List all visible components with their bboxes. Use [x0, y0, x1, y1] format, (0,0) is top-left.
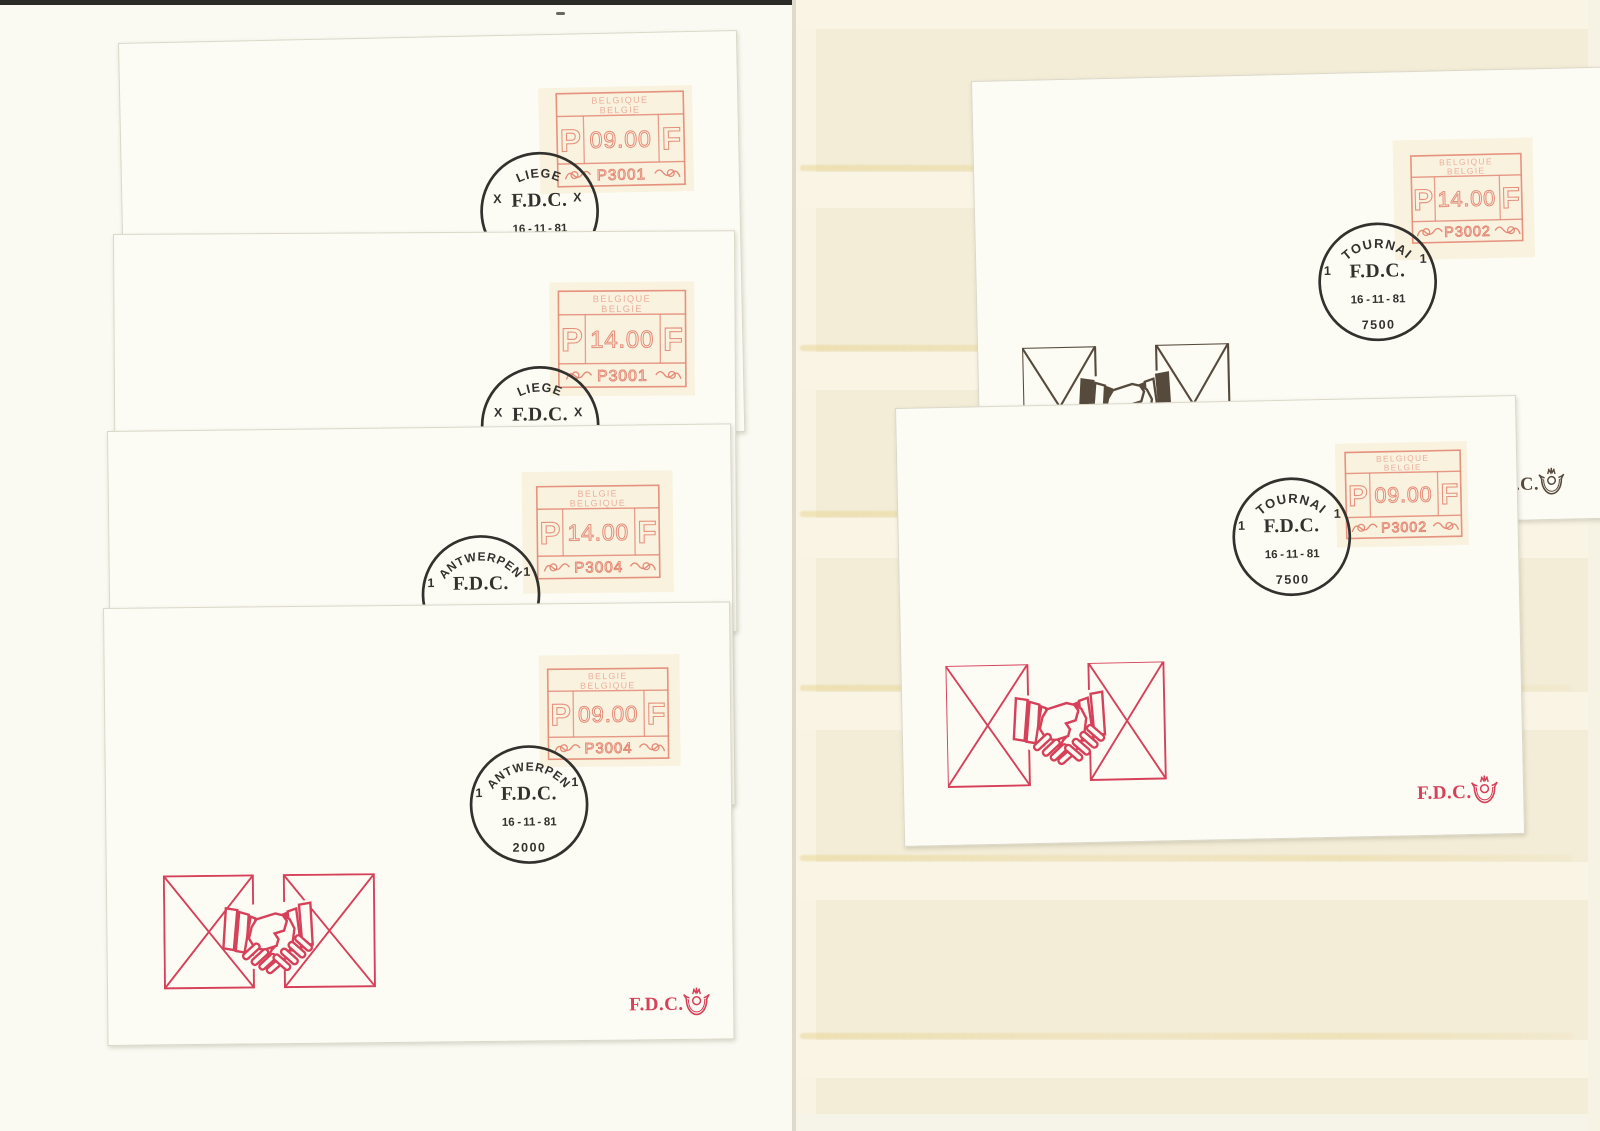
svg-text:F.D.C.: F.D.C. [501, 783, 557, 805]
svg-text:LIEGE: LIEGE [515, 380, 564, 399]
svg-text:1: 1 [1324, 264, 1331, 278]
svg-text:1: 1 [475, 786, 482, 800]
svg-text:1: 1 [427, 576, 434, 590]
svg-text:F: F [663, 320, 683, 357]
svg-text:X: X [573, 190, 582, 204]
svg-text:16-11-81: 16-11-81 [502, 816, 558, 829]
svg-text:1: 1 [1238, 519, 1245, 533]
svg-text:TOURNAI: TOURNAI [1339, 235, 1416, 263]
svg-text:BELGIE: BELGIE [601, 303, 643, 314]
svg-text:P: P [550, 698, 571, 732]
svg-text:BELGIQUE: BELGIQUE [570, 498, 627, 509]
svg-text:F.D.C.: F.D.C. [453, 573, 509, 595]
svg-text:16-11-81: 16-11-81 [1265, 548, 1321, 561]
svg-text:F.D.C.: F.D.C. [1349, 260, 1405, 282]
svg-text:P3002: P3002 [1381, 519, 1427, 536]
svg-text:7500: 7500 [1362, 317, 1396, 332]
svg-text:X: X [574, 405, 583, 419]
svg-text:1: 1 [1334, 507, 1341, 521]
svg-text:F.D.C.: F.D.C. [1263, 515, 1319, 537]
svg-text:1: 1 [1420, 252, 1427, 266]
svg-text:P: P [561, 321, 583, 358]
svg-text:P3002: P3002 [1444, 224, 1491, 241]
svg-text:1: 1 [571, 775, 578, 789]
svg-text:F.D.C.: F.D.C. [1417, 782, 1472, 804]
svg-text:BELGIE: BELGIE [1384, 462, 1422, 473]
svg-text:TOURNAI: TOURNAI [1253, 490, 1330, 518]
svg-text:LIEGE: LIEGE [514, 166, 564, 186]
svg-text:14.00: 14.00 [567, 519, 629, 546]
svg-text:14.00: 14.00 [1437, 185, 1496, 211]
svg-text:BELGIQUE: BELGIQUE [580, 680, 635, 691]
svg-text:F.D.C.: F.D.C. [629, 994, 684, 1016]
svg-text:09.00: 09.00 [1374, 482, 1432, 507]
svg-text:09.00: 09.00 [578, 702, 639, 728]
svg-text:F: F [647, 697, 666, 731]
svg-text:F: F [637, 515, 657, 550]
svg-text:F.D.C.: F.D.C. [512, 404, 568, 425]
svg-text:F: F [1440, 479, 1459, 511]
svg-text:P3004: P3004 [574, 559, 623, 577]
svg-text:BELGIE: BELGIE [1447, 165, 1486, 176]
svg-text:F: F [1501, 182, 1520, 215]
svg-text:14.00: 14.00 [590, 326, 654, 353]
svg-text:F: F [661, 120, 681, 156]
svg-text:X: X [493, 192, 502, 206]
svg-text:2000: 2000 [513, 840, 547, 854]
svg-text:BELGIE: BELGIE [600, 105, 641, 116]
svg-text:16-11-81: 16-11-81 [1351, 293, 1407, 306]
svg-text:1: 1 [523, 565, 530, 579]
svg-text:X: X [494, 406, 503, 420]
svg-text:7500: 7500 [1276, 572, 1310, 587]
svg-text:F.D.C.: F.D.C. [511, 190, 567, 212]
